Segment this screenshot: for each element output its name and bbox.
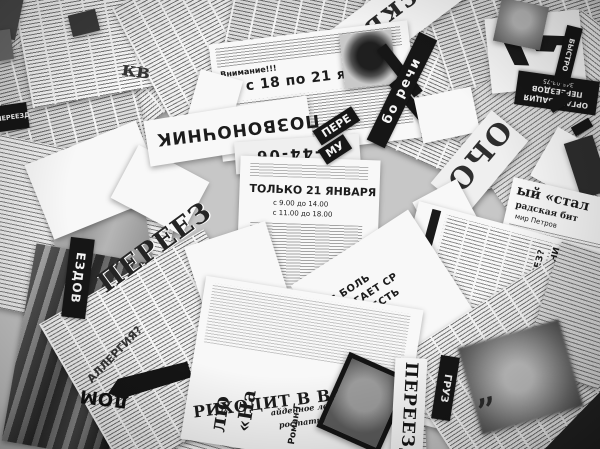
pereezdov-vertical-strip: ПЕРЕЕЗДОВ — [391, 357, 428, 449]
pereezd-box-label: ПЕРЕЕЗД — [0, 111, 30, 124]
text-ezdov: ЕЗДОВ — [68, 251, 88, 304]
text-sched1: с 9.00 до 14.00 — [273, 199, 329, 209]
only-21-top-lines — [250, 162, 368, 180]
text-sched2: с 11.00 до 18.00 — [273, 209, 333, 219]
text-pereezdov-vertical: ПЕРЕЕЗДОВ — [394, 362, 421, 449]
text-kv: кв — [120, 56, 151, 84]
pereezd-box-banner: ПЕРЕЕЗД — [0, 102, 30, 132]
text-gruz: ГРУЗ — [438, 373, 453, 403]
text-lyu-big: лю — [204, 394, 234, 434]
text-only-21: ТОЛЬКО 21 ЯНВАРЯ — [249, 182, 376, 199]
text-na-big: «На — [232, 388, 260, 433]
newspaper-collage-photo: ПЕРЕЕЗД кв осква Внимание!!! с 18 по 21 … — [0, 0, 600, 449]
